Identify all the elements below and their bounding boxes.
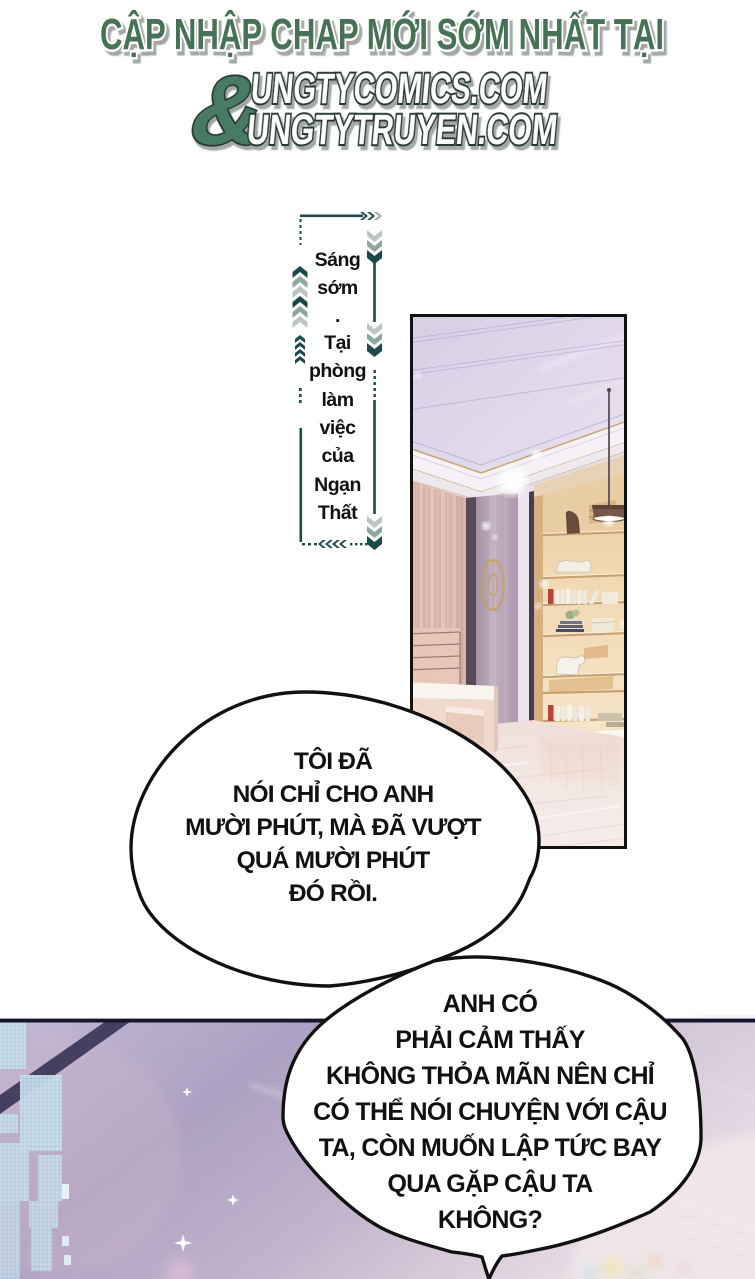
svg-text:UNGTYCOMICS.COM: UNGTYCOMICS.COM xyxy=(249,65,549,112)
svg-text:UNGTYTRUYEN.COM: UNGTYTRUYEN.COM xyxy=(245,106,559,153)
svg-text:CẬP NHẬP CHAP MỚI SỚM NHẤT TẠI: CẬP NHẬP CHAP MỚI SỚM NHẤT TẠI xyxy=(100,9,664,59)
